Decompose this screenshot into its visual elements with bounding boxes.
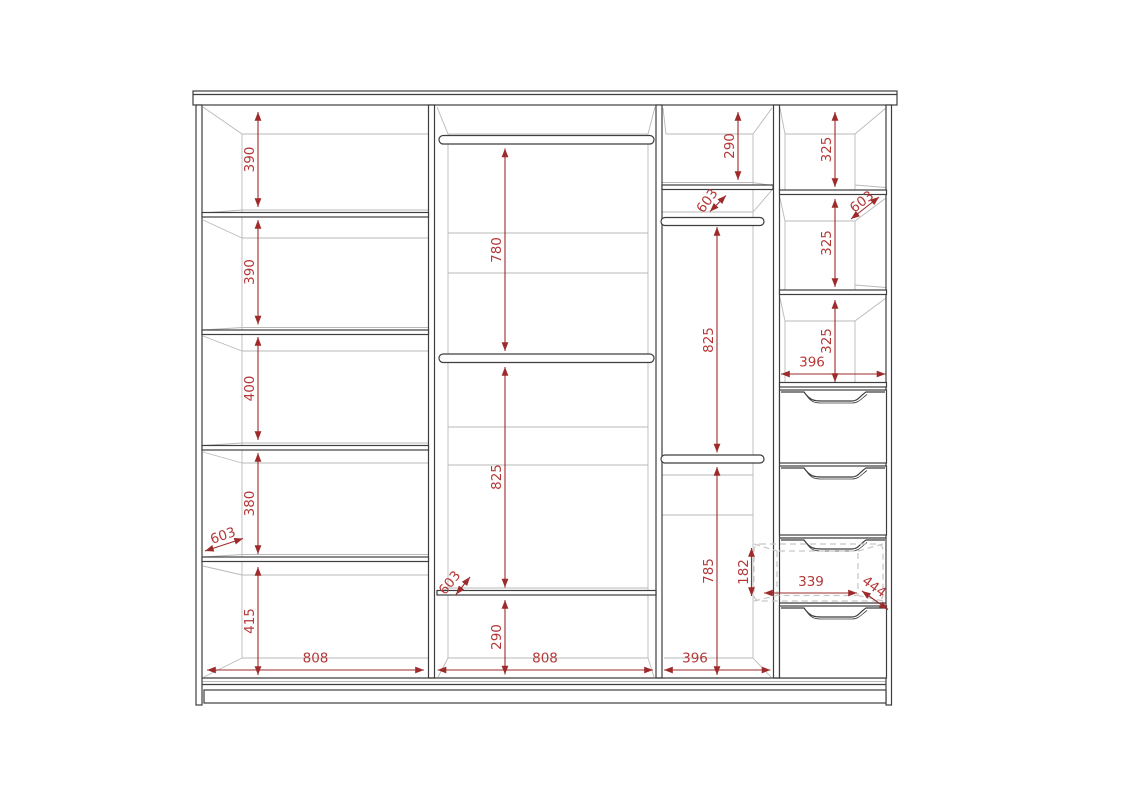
third-rod-top <box>661 218 764 226</box>
drawing-canvas: 390 390 400 380 415 780 825 290 290 825 … <box>0 0 1123 794</box>
right-shelf-2 <box>780 290 887 295</box>
dimension-label: 325 <box>819 230 835 256</box>
dimension-label: 290 <box>489 624 505 650</box>
dimension-label: 380 <box>242 491 258 517</box>
right-shelf-3 <box>780 383 887 388</box>
top-panel <box>193 91 897 105</box>
middle-shelf <box>437 591 656 596</box>
drawer-front-2 <box>780 466 887 535</box>
middle-rod-top <box>439 136 654 145</box>
dimension-label: 808 <box>532 651 558 667</box>
third-shelf <box>662 185 773 190</box>
dimension-label: 182 <box>736 559 752 585</box>
dimension-label: 325 <box>819 137 835 163</box>
dimension-label: 415 <box>242 608 258 634</box>
dimension-label: 785 <box>701 558 717 584</box>
dimension-label: 400 <box>242 376 258 402</box>
dimension-label: 825 <box>701 327 717 353</box>
divider-2 <box>656 105 662 678</box>
dimension-label: 325 <box>819 328 835 354</box>
left-shelf-4 <box>202 557 429 562</box>
left-side-panel <box>196 105 202 705</box>
dimension-label: 390 <box>242 259 258 285</box>
plinth <box>204 690 886 703</box>
dimension-label: 390 <box>242 147 258 173</box>
left-shelf-2 <box>202 330 429 335</box>
dimension-label: 290 <box>722 133 738 159</box>
middle-rod-bottom <box>439 354 654 363</box>
dimension-label: 339 <box>798 574 824 590</box>
left-shelf-1 <box>202 213 429 218</box>
dimension-label: 603 <box>208 524 238 548</box>
left-shelf-3 <box>202 446 429 451</box>
third-rod-bottom <box>661 455 764 463</box>
divider-1 <box>429 105 435 678</box>
wardrobe-technical-drawing: 390 390 400 380 415 780 825 290 290 825 … <box>0 0 1123 794</box>
dimension-label: 396 <box>682 651 708 667</box>
dimension-label: 780 <box>489 237 505 263</box>
dimension-label: 396 <box>799 355 825 371</box>
dimension-label: 808 <box>303 651 329 667</box>
dimension-label: 825 <box>489 464 505 490</box>
